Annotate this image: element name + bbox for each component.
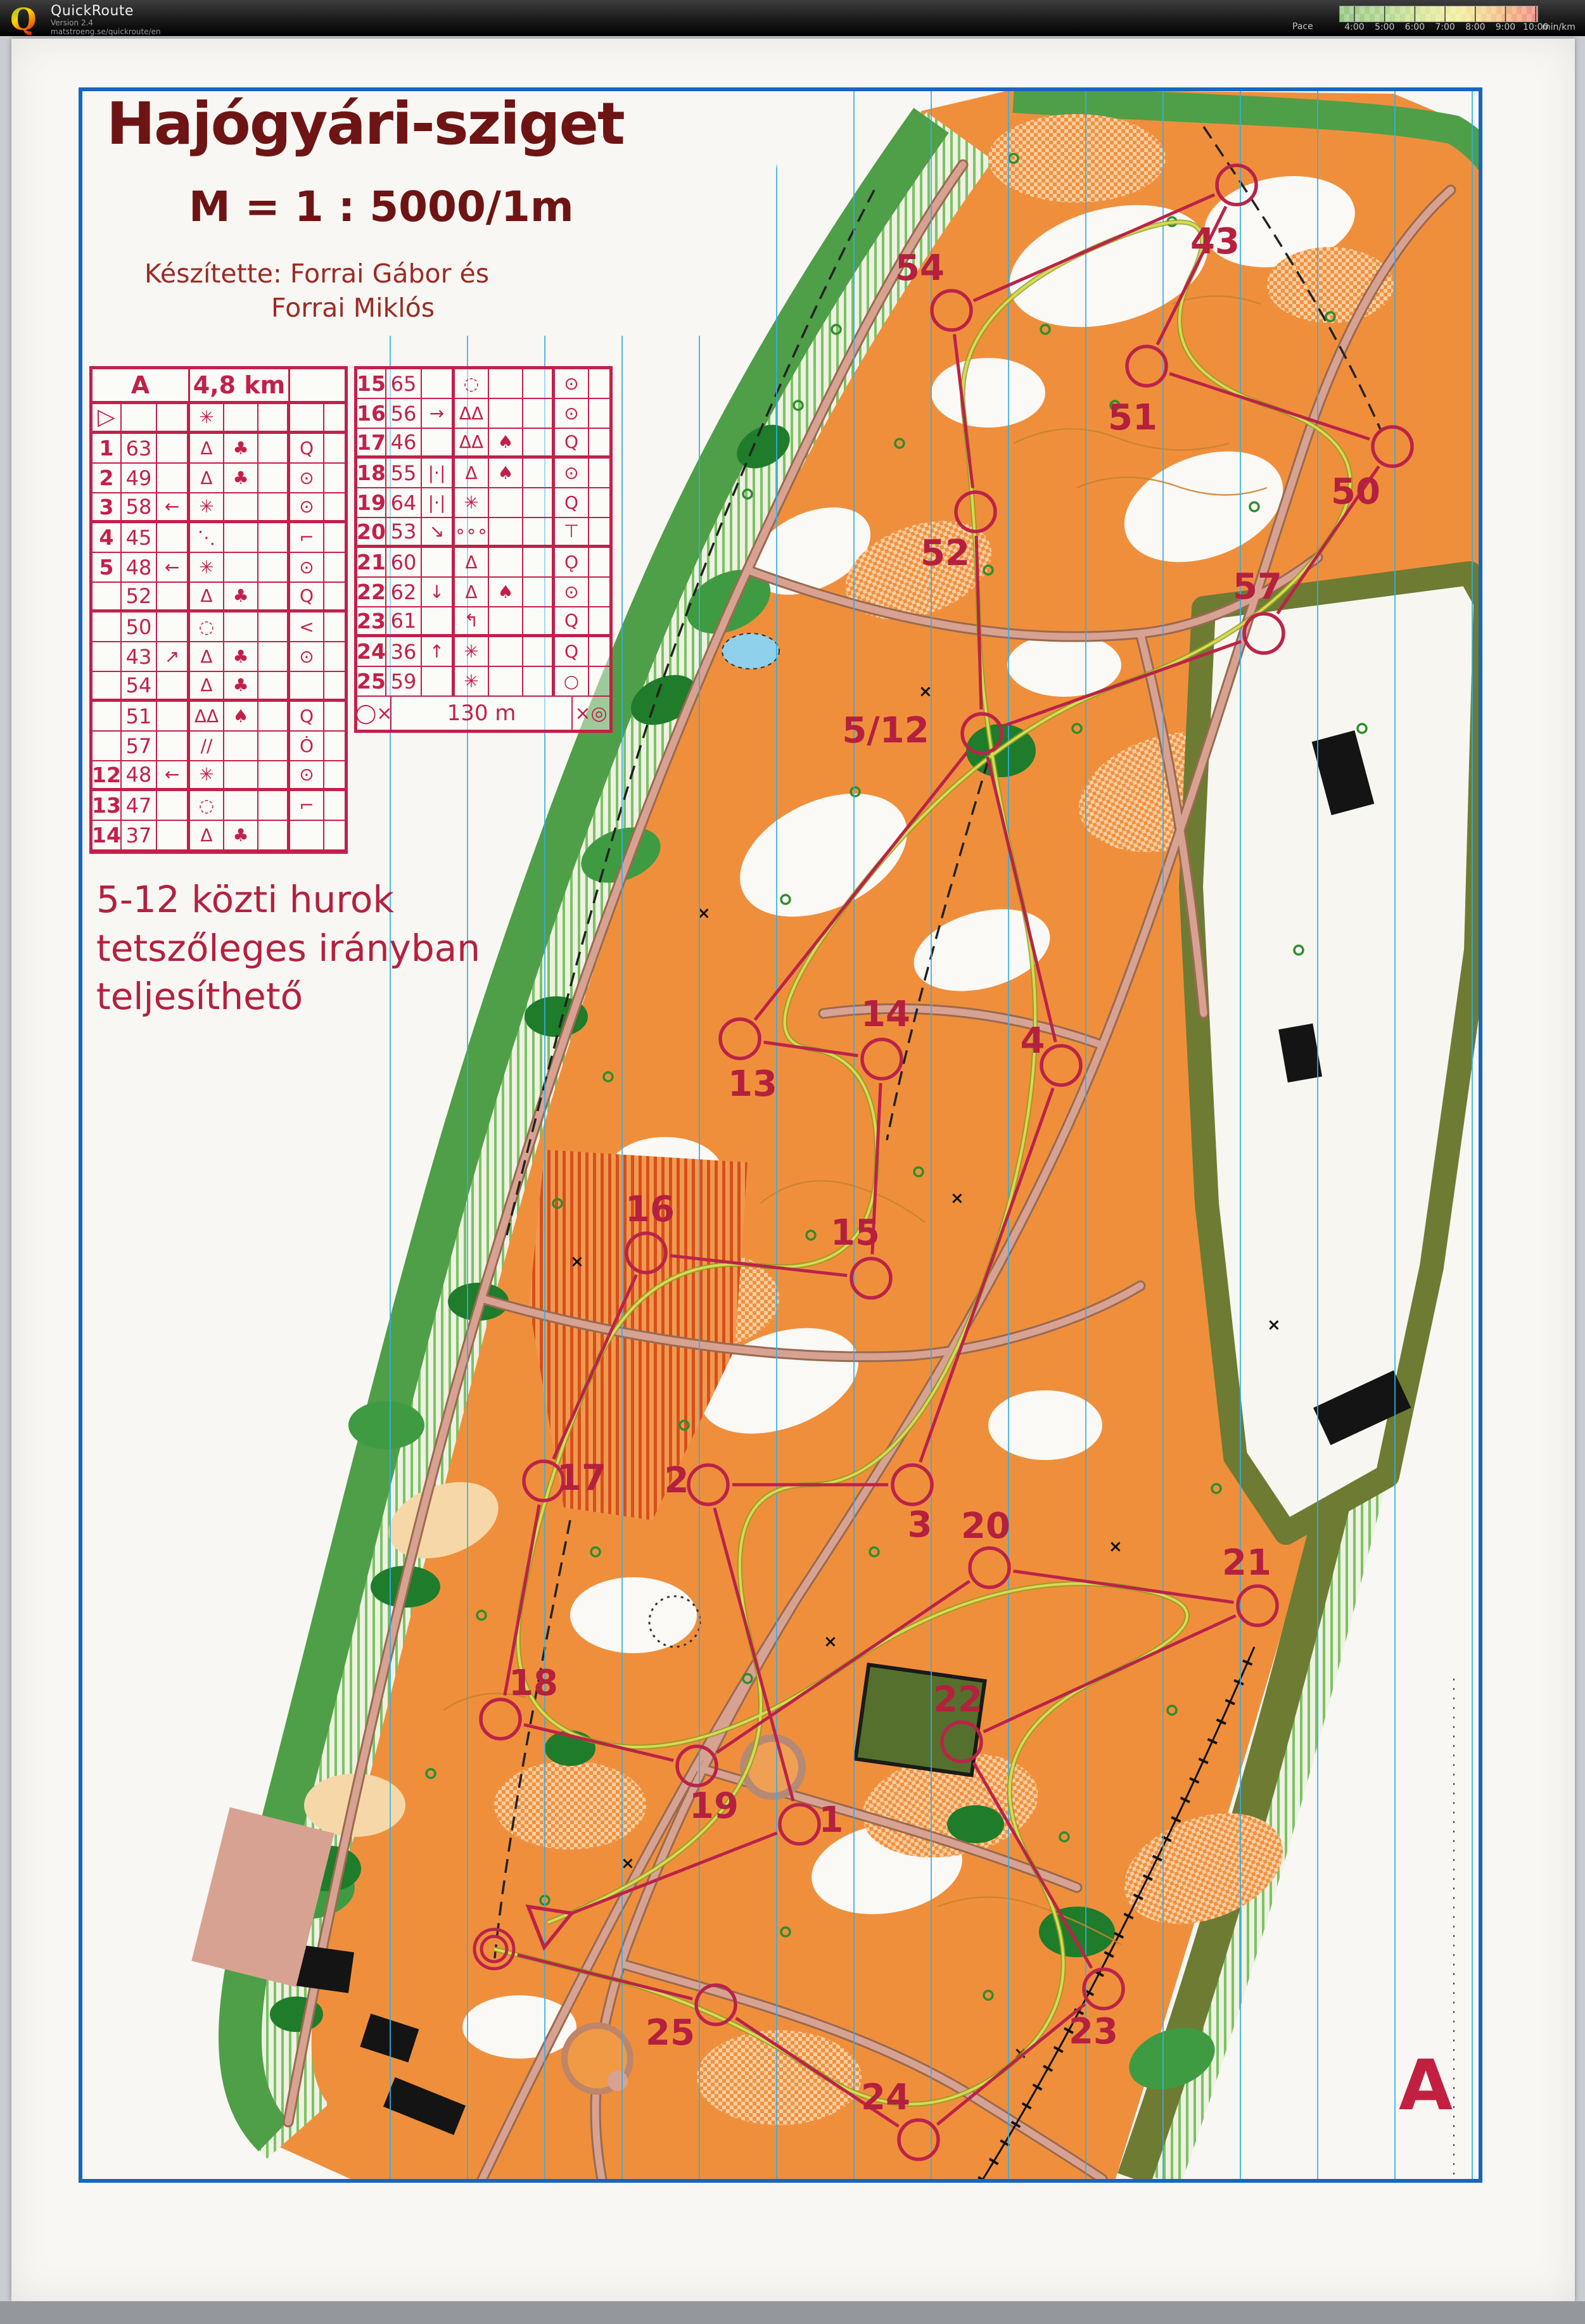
cd-cell bbox=[324, 493, 345, 523]
cd-cell bbox=[92, 642, 122, 672]
cd-cell: 58 bbox=[122, 493, 157, 523]
cd-cell: ✳ bbox=[190, 553, 224, 583]
cd-cell bbox=[589, 578, 609, 607]
cd-cell bbox=[324, 523, 345, 553]
cd-cell: ♣ bbox=[224, 642, 258, 672]
cd-cell: ΔΔ bbox=[455, 399, 489, 429]
cd-cell bbox=[92, 732, 122, 761]
cd-cell bbox=[589, 548, 609, 578]
cd-cell: ⌐ bbox=[290, 791, 324, 821]
cd-cell: ♠ bbox=[224, 702, 258, 732]
cd-cell bbox=[589, 607, 609, 637]
cd-cell: ∕∕ bbox=[190, 732, 224, 761]
cd-cell: ⊙ bbox=[555, 369, 589, 399]
cd-cell: Q bbox=[555, 637, 589, 667]
cd-cell: 17 bbox=[357, 429, 386, 459]
control-number: 50 bbox=[1331, 471, 1380, 512]
control-number: 5/12 bbox=[842, 710, 929, 751]
cd-cell bbox=[324, 672, 345, 702]
cd-cell: 47 bbox=[122, 791, 157, 821]
taped-route-start-icon: ◯× bbox=[357, 697, 390, 730]
cd-cell bbox=[224, 493, 258, 523]
cd-cell bbox=[422, 369, 455, 399]
cd-cell: ♣ bbox=[224, 583, 258, 613]
cd-row: 1248←✳⊙ bbox=[92, 761, 345, 791]
cd-cell: 54 bbox=[122, 672, 157, 702]
course-note: 5-12 közti hurok tetszőleges irányban te… bbox=[96, 875, 480, 1021]
cd-cell bbox=[324, 404, 345, 434]
cd-cell: ✳ bbox=[455, 488, 489, 518]
cd-cell: Ǫ bbox=[555, 548, 589, 578]
cd-cell: ○ bbox=[555, 667, 589, 697]
cd-cell bbox=[258, 672, 290, 702]
cd-cell: Δ bbox=[190, 642, 224, 672]
cd-row: 2436↑✳Q bbox=[357, 637, 609, 667]
cd-row: 43↗Δ♣⊙ bbox=[92, 642, 345, 672]
cd-cell: 5 bbox=[92, 553, 122, 583]
cd-cell: ♣ bbox=[224, 434, 258, 464]
cd-cell bbox=[523, 399, 555, 429]
cd-cell bbox=[157, 613, 190, 642]
cd-finish-row: ◯× 130 m ×◎ bbox=[357, 697, 609, 730]
cd-cell: ♣ bbox=[224, 464, 258, 493]
cd-row: 1347◌⌐ bbox=[92, 791, 345, 821]
cd-cell bbox=[258, 821, 290, 851]
cd-cell: ⊙ bbox=[290, 642, 324, 672]
cd-cell: 60 bbox=[386, 548, 422, 578]
cd-cell bbox=[157, 464, 190, 493]
cd-cell bbox=[589, 518, 609, 548]
cd-cell: ◌ bbox=[190, 791, 224, 821]
cd-cell: ⊙ bbox=[290, 553, 324, 583]
control-number: 23 bbox=[1069, 2011, 1118, 2052]
cd-cell: 50 bbox=[122, 613, 157, 642]
cd-cell bbox=[258, 434, 290, 464]
cd-cell bbox=[589, 459, 609, 488]
cd-cell: 36 bbox=[386, 637, 422, 667]
cd-cell bbox=[489, 518, 523, 548]
cd-cell bbox=[258, 702, 290, 732]
cd-cell bbox=[489, 607, 523, 637]
cd-cell: 24 bbox=[357, 637, 386, 667]
cd-cell: ⊙ bbox=[290, 493, 324, 523]
cd-row: 2053↘∘∘∘⊤ bbox=[357, 518, 609, 548]
cd-cell: ✳ bbox=[190, 493, 224, 523]
finish-distance: 130 m bbox=[390, 697, 573, 730]
course-note-line: teljesíthető bbox=[96, 972, 480, 1021]
cd-cell bbox=[258, 404, 290, 434]
cd-cell: 59 bbox=[386, 667, 422, 697]
control-number: 43 bbox=[1190, 221, 1240, 262]
cd-cell bbox=[589, 637, 609, 667]
cd-cell: 1 bbox=[92, 434, 122, 464]
cd-row: 1656→ΔΔ⊙ bbox=[357, 399, 609, 429]
cd-cell: ◌ bbox=[455, 369, 489, 399]
cd-cell bbox=[523, 488, 555, 518]
cd-cell bbox=[324, 702, 345, 732]
cd-cell: 25 bbox=[357, 667, 386, 697]
cd-cell bbox=[324, 821, 345, 851]
cd-cell bbox=[523, 369, 555, 399]
cd-cell: 3 bbox=[92, 493, 122, 523]
cd-cell: Q bbox=[555, 429, 589, 459]
cd-cell: ↘ bbox=[422, 518, 455, 548]
cd-cell bbox=[489, 369, 523, 399]
cd-cell bbox=[258, 732, 290, 761]
cd-cell: Δ bbox=[455, 578, 489, 607]
cd-cell bbox=[422, 607, 455, 637]
cd-row: 2160ΔǪ bbox=[357, 548, 609, 578]
cd-cell bbox=[523, 578, 555, 607]
cd-cell bbox=[489, 399, 523, 429]
cd-cell: ♣ bbox=[224, 672, 258, 702]
cd-cell bbox=[92, 613, 122, 642]
quickroute-window: { "toolbar": { "app_name": "QuickRoute",… bbox=[0, 0, 1585, 2324]
cd-cell bbox=[523, 548, 555, 578]
control-number: 20 bbox=[961, 1506, 1010, 1547]
cd-cell bbox=[324, 732, 345, 761]
cd-cell: 52 bbox=[122, 583, 157, 613]
cd-cell: ♣ bbox=[224, 821, 258, 851]
cd-cell bbox=[224, 791, 258, 821]
cd-cell: |·| bbox=[422, 459, 455, 488]
cd-cell: 16 bbox=[357, 399, 386, 429]
cd-cell bbox=[224, 761, 258, 791]
cd-cell: 45 bbox=[122, 523, 157, 553]
control-number: 4 bbox=[1021, 1020, 1045, 1062]
cd-cell bbox=[324, 791, 345, 821]
cd-row: 2559✳○ bbox=[357, 667, 609, 697]
cd-cell: 62 bbox=[386, 578, 422, 607]
cd-cell: ⊙ bbox=[555, 459, 589, 488]
cd-cell bbox=[224, 613, 258, 642]
cd-cell bbox=[523, 518, 555, 548]
control-number: 24 bbox=[861, 2077, 910, 2118]
cd-row: 57∕∕Ȯ bbox=[92, 732, 345, 761]
cd-cell bbox=[589, 399, 609, 429]
cd-row: 52Δ♣Q bbox=[92, 583, 345, 613]
cd-cell: ⊙ bbox=[555, 578, 589, 607]
cd-cell: Ȯ bbox=[290, 732, 324, 761]
cd-cell: 56 bbox=[386, 399, 422, 429]
cd-row: 1565◌⊙ bbox=[357, 369, 609, 399]
svg-text:×: × bbox=[1267, 1316, 1281, 1335]
cd-cell bbox=[258, 613, 290, 642]
svg-text:×: × bbox=[621, 1854, 635, 1873]
cd-cell: 53 bbox=[386, 518, 422, 548]
cd-cell: ⊙ bbox=[290, 761, 324, 791]
map-scale: M = 1 : 5000/1m bbox=[189, 182, 574, 231]
cd-cell bbox=[523, 667, 555, 697]
map-credit-line2: Forrai Miklós bbox=[271, 293, 435, 323]
cd-cell bbox=[589, 429, 609, 459]
cd-cell: Δ bbox=[190, 821, 224, 851]
cd-cell bbox=[523, 459, 555, 488]
control-number: 51 bbox=[1108, 397, 1157, 438]
cd-row: 445⋱⌐ bbox=[92, 523, 345, 553]
cd-cell: ← bbox=[157, 553, 190, 583]
cd-cell bbox=[157, 702, 190, 732]
cd-cell: < bbox=[290, 613, 324, 642]
cd-cell: 55 bbox=[386, 459, 422, 488]
control-number: 17 bbox=[557, 1457, 606, 1499]
cd-cell bbox=[589, 488, 609, 518]
cd-cell bbox=[157, 791, 190, 821]
cd-header-blank bbox=[290, 369, 345, 404]
control-number: 13 bbox=[728, 1064, 777, 1105]
control-number: 2 bbox=[665, 1460, 689, 1501]
cd-row: 1437Δ♣ bbox=[92, 821, 345, 851]
cd-row: ▷✳ bbox=[92, 404, 345, 434]
cd-cell: 22 bbox=[357, 578, 386, 607]
cd-cell bbox=[157, 434, 190, 464]
cd-cell bbox=[92, 672, 122, 702]
cd-cell: Q bbox=[290, 434, 324, 464]
cd-cell bbox=[122, 404, 157, 434]
cd-cell: ∘∘∘ bbox=[455, 518, 489, 548]
cd-cell bbox=[258, 583, 290, 613]
cd-row: 1964|·|✳Q bbox=[357, 488, 609, 518]
cd-cell: ◌ bbox=[190, 613, 224, 642]
control-number: 57 bbox=[1233, 566, 1282, 607]
cd-cell: 19 bbox=[357, 488, 386, 518]
cd-row: 1746ΔΔ♠Q bbox=[357, 429, 609, 459]
cd-row: 163Δ♣Q bbox=[92, 434, 345, 464]
cd-cell bbox=[489, 548, 523, 578]
cd-cell bbox=[157, 672, 190, 702]
cd-course-name: A bbox=[92, 369, 190, 404]
cd-cell: Q bbox=[555, 607, 589, 637]
cd-cell bbox=[258, 464, 290, 493]
control-descriptions-left: A 4,8 km ▷✳163Δ♣Q249Δ♣⊙358←✳⊙445⋱⌐548←✳⊙… bbox=[89, 366, 348, 854]
cd-cell: 14 bbox=[92, 821, 122, 851]
cd-row: 548←✳⊙ bbox=[92, 553, 345, 583]
cd-cell: Δ bbox=[455, 548, 489, 578]
cd-row: 249Δ♣⊙ bbox=[92, 464, 345, 493]
cd-cell: ↑ bbox=[422, 637, 455, 667]
cd-cell: ▷ bbox=[92, 404, 122, 434]
map-credit-line1: Készítette: Forrai Gábor és bbox=[144, 258, 489, 289]
cd-cell: Q bbox=[555, 488, 589, 518]
svg-text:×: × bbox=[919, 682, 933, 701]
control-descriptions-right: 1565◌⊙1656→ΔΔ⊙1746ΔΔ♠Q1855|·|Δ♠⊙1964|·|✳… bbox=[354, 366, 613, 733]
cd-cell: Δ bbox=[190, 583, 224, 613]
cd-cell: 48 bbox=[122, 553, 157, 583]
cd-cell: ↓ bbox=[422, 578, 455, 607]
cd-cell bbox=[489, 488, 523, 518]
cd-cell bbox=[92, 583, 122, 613]
cd-course-length: 4,8 km bbox=[190, 369, 290, 404]
cd-row: 2262↓Δ♠⊙ bbox=[357, 578, 609, 607]
cd-cell bbox=[589, 369, 609, 399]
cd-cell: ✳ bbox=[190, 404, 224, 434]
cd-cell: ↰ bbox=[455, 607, 489, 637]
cd-cell: 21 bbox=[357, 548, 386, 578]
cd-cell: 12 bbox=[92, 761, 122, 791]
cd-cell: ⌐ bbox=[290, 523, 324, 553]
cd-cell bbox=[290, 672, 324, 702]
cd-row: 2361↰Q bbox=[357, 607, 609, 637]
cd-cell: 57 bbox=[122, 732, 157, 761]
cd-cell: 48 bbox=[122, 761, 157, 791]
control-number: 16 bbox=[625, 1189, 675, 1230]
course-note-line: 5-12 közti hurok bbox=[96, 875, 480, 924]
control-number: 14 bbox=[861, 994, 910, 1035]
cd-row: 51ΔΔ♠Q bbox=[92, 702, 345, 732]
cd-cell: 13 bbox=[92, 791, 122, 821]
control-number: 21 bbox=[1222, 1542, 1271, 1584]
cd-cell bbox=[258, 761, 290, 791]
cd-cell: 18 bbox=[357, 459, 386, 488]
cd-cell: 23 bbox=[357, 607, 386, 637]
cd-cell bbox=[290, 821, 324, 851]
cd-header: A 4,8 km bbox=[92, 369, 345, 404]
cd-cell bbox=[258, 791, 290, 821]
cd-cell bbox=[324, 761, 345, 791]
cd-cell bbox=[324, 434, 345, 464]
cd-cell: ← bbox=[157, 493, 190, 523]
cd-row: 50◌< bbox=[92, 613, 345, 642]
cd-cell: 64 bbox=[386, 488, 422, 518]
cd-row: 358←✳⊙ bbox=[92, 493, 345, 523]
cd-cell: 61 bbox=[386, 607, 422, 637]
cd-cell bbox=[324, 613, 345, 642]
cd-cell bbox=[523, 429, 555, 459]
cd-cell: ✳ bbox=[455, 637, 489, 667]
cd-cell bbox=[324, 583, 345, 613]
cd-cell: ΔΔ bbox=[455, 429, 489, 459]
cd-cell: ⋱ bbox=[190, 523, 224, 553]
control-number: 15 bbox=[831, 1212, 880, 1254]
cd-cell bbox=[92, 702, 122, 732]
cd-cell bbox=[489, 667, 523, 697]
cd-cell bbox=[224, 523, 258, 553]
course-note-line: tetszőleges irányban bbox=[96, 924, 480, 973]
cd-cell bbox=[224, 553, 258, 583]
cd-cell bbox=[422, 667, 455, 697]
cd-cell: 49 bbox=[122, 464, 157, 493]
cd-cell: ← bbox=[157, 761, 190, 791]
svg-text:×: × bbox=[570, 1252, 584, 1271]
cd-cell bbox=[157, 732, 190, 761]
control-number: 1 bbox=[819, 1800, 844, 1841]
svg-text:×: × bbox=[1109, 1537, 1123, 1556]
cd-cell bbox=[324, 553, 345, 583]
cd-cell bbox=[589, 667, 609, 697]
cd-cell: |·| bbox=[422, 488, 455, 518]
cd-cell bbox=[258, 553, 290, 583]
cd-cell: 2 bbox=[92, 464, 122, 493]
cd-cell bbox=[523, 637, 555, 667]
cd-cell bbox=[258, 642, 290, 672]
cd-cell bbox=[157, 523, 190, 553]
cd-cell bbox=[224, 732, 258, 761]
control-number: 22 bbox=[933, 1679, 983, 1720]
cd-cell bbox=[157, 404, 190, 434]
cd-cell bbox=[224, 404, 258, 434]
cd-cell: 43 bbox=[122, 642, 157, 672]
cd-row: 1855|·|Δ♠⊙ bbox=[357, 459, 609, 488]
finish-icon: ×◎ bbox=[573, 697, 609, 730]
svg-text:×: × bbox=[824, 1632, 837, 1651]
cd-cell: 37 bbox=[122, 821, 157, 851]
cd-cell bbox=[258, 523, 290, 553]
control-number: 19 bbox=[689, 1786, 739, 1827]
cd-cell: 15 bbox=[357, 369, 386, 399]
cd-cell: 4 bbox=[92, 523, 122, 553]
cd-cell bbox=[489, 637, 523, 667]
cd-cell: 46 bbox=[386, 429, 422, 459]
cd-row: 54Δ♣ bbox=[92, 672, 345, 702]
cd-cell: ♠ bbox=[489, 459, 523, 488]
control-number: 18 bbox=[509, 1663, 558, 1704]
cd-cell bbox=[157, 583, 190, 613]
cd-cell bbox=[422, 548, 455, 578]
cd-cell bbox=[290, 404, 324, 434]
cd-cell: ⊙ bbox=[290, 464, 324, 493]
cd-cell: Δ bbox=[190, 434, 224, 464]
control-number: 25 bbox=[646, 2012, 695, 2054]
course-letter: A bbox=[1399, 2045, 1453, 2126]
cd-cell bbox=[324, 642, 345, 672]
cd-cell: Δ bbox=[455, 459, 489, 488]
map-title: Hajógyári-sziget bbox=[106, 90, 624, 158]
cd-cell: ✳ bbox=[190, 761, 224, 791]
cd-cell: ⊤ bbox=[555, 518, 589, 548]
cd-cell: ✳ bbox=[455, 667, 489, 697]
cd-cell: ΔΔ bbox=[190, 702, 224, 732]
cd-cell: 65 bbox=[386, 369, 422, 399]
cd-cell: Q bbox=[290, 583, 324, 613]
cd-cell: → bbox=[422, 399, 455, 429]
svg-text:×: × bbox=[950, 1189, 964, 1208]
cd-cell: 63 bbox=[122, 434, 157, 464]
cd-cell bbox=[422, 429, 455, 459]
cd-cell: ⊙ bbox=[555, 399, 589, 429]
cd-cell: ♠ bbox=[489, 578, 523, 607]
control-number: 3 bbox=[908, 1504, 933, 1546]
cd-cell bbox=[258, 493, 290, 523]
control-number: 54 bbox=[895, 248, 945, 289]
cd-cell: 51 bbox=[122, 702, 157, 732]
map-canvas[interactable]: ××××××××× 4354515052575/1213144161517232… bbox=[0, 0, 1585, 2324]
cd-cell bbox=[157, 821, 190, 851]
cd-cell bbox=[523, 607, 555, 637]
cd-cell: 20 bbox=[357, 518, 386, 548]
control-number: 52 bbox=[920, 533, 970, 574]
cd-cell: Δ bbox=[190, 672, 224, 702]
cd-cell: ↗ bbox=[157, 642, 190, 672]
cd-cell: Δ bbox=[190, 464, 224, 493]
cd-cell bbox=[324, 464, 345, 493]
cd-cell: ♠ bbox=[489, 429, 523, 459]
cd-cell: Q bbox=[290, 702, 324, 732]
